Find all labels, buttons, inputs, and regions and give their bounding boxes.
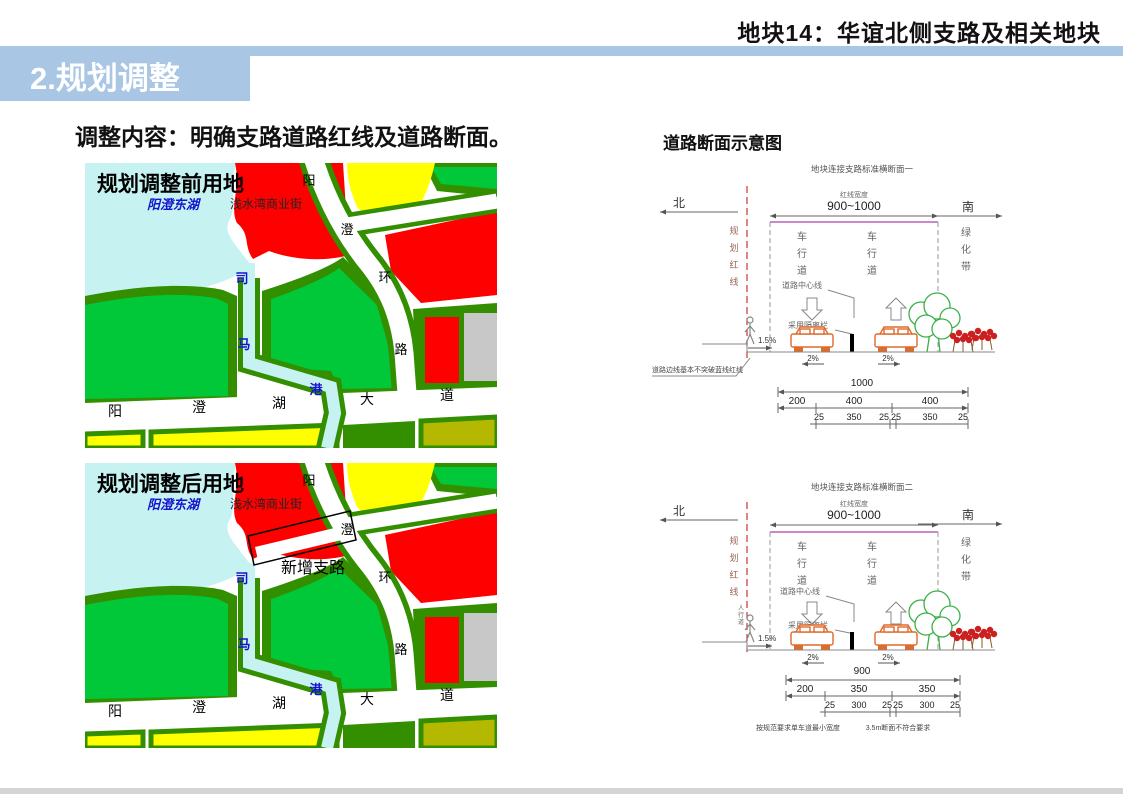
lane-right-char-2: 行: [867, 557, 877, 570]
section-banner: 2.规划调整: [0, 56, 250, 101]
commercial-label: 浅水湾商业街: [230, 496, 302, 511]
redline-char-4: 线: [729, 586, 738, 597]
ring-char-2: 澄: [340, 522, 353, 537]
lane-left-char-2: 行: [797, 247, 807, 260]
redline-char-1: 规: [729, 536, 738, 546]
sidewalk-char-2: 行: [738, 611, 744, 619]
barrier-leader: [835, 330, 852, 334]
river-char-1: 司: [235, 271, 248, 286]
lane-left-char-3: 道: [797, 264, 807, 277]
greenbelt-char-1: 绿: [961, 536, 971, 549]
adjustment-subtitle: 调整内容：明确支路道路红线及道路断面。: [75, 118, 512, 152]
south-green-wedge: [343, 721, 415, 748]
sidewalk-line: [702, 642, 747, 650]
centerline-leader: [828, 290, 854, 318]
dim-row1-2: 350: [851, 684, 868, 695]
map-title: 规划调整后用地: [97, 472, 244, 496]
south-olive: [421, 717, 497, 748]
land-use-map-after: 规划调整后用地 阳澄东湖 浅水湾商业街 新增支路 司 马 港 阳 澄 环 路 阳…: [85, 463, 497, 748]
dim-row1-1: 200: [789, 396, 806, 407]
avenue-char-1: 阳: [108, 703, 122, 719]
avenue-char-3: 湖: [272, 695, 286, 711]
avenue-char-2: 澄: [192, 699, 206, 715]
map-title: 规划调整前用地: [97, 172, 244, 196]
page-title: 地块14：华谊北侧支路及相关地块: [737, 14, 1101, 48]
south-green-wedge: [343, 421, 415, 448]
note-left: 按规范要求单车道最小宽度: [756, 723, 840, 732]
lane-slope-left: 2%: [807, 653, 819, 662]
width-label: 红线宽度: [840, 190, 868, 199]
south-yellow-2: [151, 425, 337, 448]
lane-left-char-1: 车: [797, 230, 807, 243]
car-right: [875, 327, 917, 352]
redline-char-2: 划: [729, 552, 738, 563]
diagram-title: 地块连接支路标准横断面二: [811, 482, 914, 492]
se-gray-lot: [464, 313, 497, 381]
centerline-label: 道路中心线: [782, 280, 822, 290]
north-label: 北: [673, 504, 685, 518]
lake-label: 阳澄东湖: [147, 497, 202, 512]
dim-row2-5: 300: [919, 700, 934, 710]
barrier-leader: [835, 630, 850, 633]
redline-char-1: 规: [729, 226, 738, 236]
dim-row1-3: 400: [922, 396, 939, 407]
accent-strip: [0, 46, 1123, 56]
left-parcel: [85, 595, 228, 699]
lane-slope-left: 2%: [807, 354, 819, 363]
dim-row2-3: 25: [879, 412, 889, 422]
dim-row2-1: 25: [814, 412, 824, 422]
greenbelt-char-3: 带: [961, 261, 971, 273]
south-label: 南: [962, 507, 974, 522]
redline-char-3: 红: [729, 569, 738, 580]
barrier-post: [850, 632, 854, 650]
lane-left-char-1: 车: [797, 540, 807, 553]
river-char-3: 港: [309, 382, 323, 397]
se-gray-lot: [464, 613, 497, 681]
lane-left-char-3: 道: [797, 574, 807, 587]
sidewalk-line: [702, 344, 747, 352]
land-use-map-before: 规划调整前用地 阳澄东湖 浅水湾商业街 司 马 港 阳 澄 环 路 阳 澄 湖 …: [85, 163, 497, 448]
up-arrow: [886, 602, 906, 624]
ring-char-1: 阳: [302, 173, 315, 188]
lake-label: 阳澄东湖: [147, 197, 202, 212]
greenbelt-char-1: 绿: [961, 226, 971, 239]
redline-char-4: 线: [729, 276, 738, 287]
greenbelt-char-2: 化: [961, 553, 971, 566]
left-parcel: [85, 295, 228, 399]
dim-total: 1000: [851, 378, 874, 389]
shrub-2: [969, 626, 997, 648]
south-yellow-2: [151, 725, 337, 748]
dim-row2-4: 25: [893, 700, 903, 710]
ring-char-3: 环: [378, 270, 391, 285]
dim-row2-6: 25: [950, 700, 960, 710]
car-left: [791, 625, 833, 650]
south-label: 南: [962, 199, 974, 214]
river-char-3: 港: [309, 682, 323, 697]
greenbelt-char-3: 带: [961, 571, 971, 583]
lane-right-char-1: 车: [867, 230, 877, 243]
lane-left-char-2: 行: [797, 557, 807, 570]
footer-bar: [0, 788, 1123, 794]
cross-section-heading: 道路断面示意图: [663, 129, 782, 154]
lane-right-char-1: 车: [867, 540, 877, 553]
north-label: 北: [673, 196, 685, 210]
south-olive: [421, 417, 497, 448]
lane-right-char-2: 行: [867, 247, 877, 260]
dim-row1-2: 400: [846, 396, 863, 407]
dim-row2-5: 350: [922, 412, 937, 422]
avenue-char-2: 澄: [192, 399, 206, 415]
dim-row2-6: 25: [958, 412, 968, 422]
se-red-lot: [425, 317, 459, 383]
centerline-label: 道路中心线: [780, 586, 820, 596]
down-arrow: [802, 298, 822, 320]
lane-slope-right: 2%: [882, 354, 894, 363]
shrub-2: [969, 328, 997, 350]
car-left: [791, 327, 833, 352]
river-char-1: 司: [235, 571, 248, 586]
diagram-title: 地块连接支路标准横断面一: [811, 164, 914, 174]
avenue-char-5: 道: [440, 387, 454, 403]
ring-char-3: 环: [378, 570, 391, 585]
se-red-lot: [425, 617, 459, 683]
car-right: [875, 625, 917, 650]
note-right: 3.5m断面不符合要求: [866, 723, 931, 732]
dim-total: 900: [854, 666, 871, 677]
river-char-2: 马: [237, 637, 250, 652]
avenue-char-1: 阳: [108, 403, 122, 419]
lane-slope-right: 2%: [882, 653, 894, 662]
sidewalk-char-1: 人: [738, 605, 744, 612]
sidewalk-char-3: 道: [738, 618, 744, 626]
centerline-leader: [826, 596, 854, 622]
ring-char-4: 路: [394, 342, 407, 357]
avenue-char-3: 湖: [272, 395, 286, 411]
width-label: 红线宽度: [840, 499, 868, 508]
dim-row1-1: 200: [797, 684, 814, 695]
south-yellow-1: [85, 432, 143, 448]
greenbelt-char-2: 化: [961, 243, 971, 256]
lane-right-char-3: 道: [867, 264, 877, 277]
width-value: 900~1000: [827, 508, 881, 522]
dim-row1-3: 350: [919, 684, 936, 695]
lane-right-char-3: 道: [867, 574, 877, 587]
river-char-2: 马: [237, 337, 250, 352]
ring-char-4: 路: [394, 642, 407, 657]
up-arrow: [886, 298, 906, 320]
cross-section-diagram-2: 地块连接支路标准横断面二 北 南 规 划 红 线 红线宽度 900~1000 车…: [650, 462, 1010, 762]
commercial-label: 浅水湾商业街: [230, 196, 302, 211]
sidewalk-slope: 1.5%: [758, 336, 776, 345]
sidewalk-slope: 1.5%: [758, 634, 776, 643]
avenue-char-5: 道: [440, 687, 454, 703]
ring-char-2: 澄: [340, 222, 353, 237]
avenue-char-4: 大: [360, 391, 374, 407]
ring-char-1: 阳: [302, 473, 315, 488]
cross-section-diagram-1: 地块连接支路标准横断面一 北 南 规 划 红 线 红线宽度 900~1000 车…: [650, 160, 1010, 430]
dim-row2-2: 350: [846, 412, 861, 422]
dim-row2-1: 25: [825, 700, 835, 710]
redline-char-3: 红: [729, 259, 738, 270]
avenue-char-4: 大: [360, 691, 374, 707]
dim-row2-2: 300: [851, 700, 866, 710]
south-yellow-1: [85, 732, 143, 748]
redline-char-2: 划: [729, 242, 738, 253]
barrier-post: [850, 334, 854, 352]
slide: 地块14：华谊北侧支路及相关地块 2.规划调整 调整内容：明确支路道路红线及道路…: [0, 0, 1123, 794]
new-road-label: 新增支路: [281, 559, 345, 577]
width-value: 900~1000: [827, 199, 881, 213]
dim-row2-3: 25: [882, 700, 892, 710]
redline-note: 道路边线基本不突破蓝线红线: [652, 365, 743, 374]
